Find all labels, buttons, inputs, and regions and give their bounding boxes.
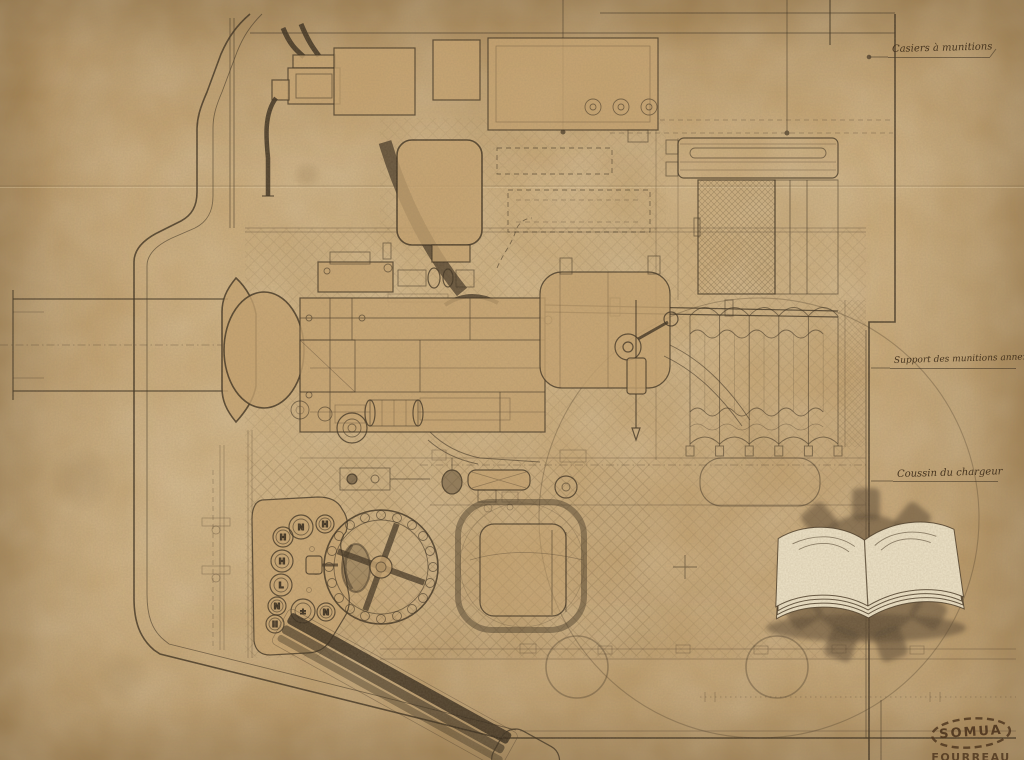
paper-background: N H H H L N II ± N [0, 0, 1024, 760]
paper-grain [0, 0, 1024, 760]
technical-drawing: N H H H L N II ± N [0, 0, 1024, 760]
stamp-subtext: FOURREAU [924, 751, 1018, 760]
somua-stamp: SOMUA [928, 714, 1014, 752]
